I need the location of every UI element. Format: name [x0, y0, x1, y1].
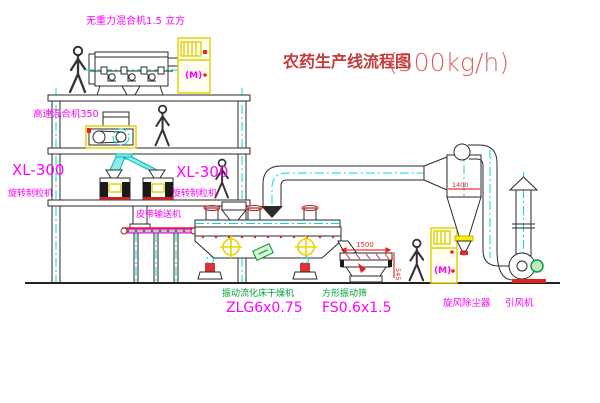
- drawing-canvas: (M): [0, 0, 600, 403]
- fan-motor: [531, 260, 543, 272]
- label-gravity-mixer: 无重力混合机1.5 立方: [86, 14, 185, 27]
- label-belt-conveyor: 皮带输送机: [136, 208, 181, 220]
- rotary-granulator-left: [100, 170, 130, 200]
- label-granulator-right-model: XL-300: [176, 163, 228, 181]
- process-flow-diagram: (M): [0, 0, 600, 403]
- exhaust-duct: [261, 166, 438, 218]
- belt-conveyor: [121, 228, 197, 283]
- exhaust-stack: [510, 172, 537, 262]
- control-cabinet-lower: (M): [431, 228, 457, 283]
- worker-roof: [70, 47, 85, 92]
- cyclone-air-outlet: [454, 144, 470, 160]
- gravity-free-mixer: [86, 52, 180, 95]
- label-sieve-model: FS0.6x1.5: [322, 300, 392, 316]
- dryer-exhaust-ports: [204, 206, 318, 221]
- worker-ground: [410, 240, 424, 281]
- rotary-granulator-right: [143, 170, 173, 200]
- worker-second-floor: [156, 106, 169, 146]
- control-cabinet-upper: (M): [178, 38, 210, 93]
- dryer-feed-hopper: [222, 202, 246, 210]
- dim-sieve-length: 1500: [356, 241, 374, 249]
- label-cyclone: 旋风除尘器: [443, 297, 491, 309]
- dim-cyclone: 1400: [452, 181, 469, 189]
- stack-rain-cap: [510, 177, 537, 190]
- label-granulator-left-model: XL-300: [12, 161, 64, 179]
- motor-symbol: (M): [434, 266, 451, 276]
- y-feed-chute: [109, 154, 161, 172]
- label-granulator-left-name: 旋转制粒机: [8, 187, 53, 199]
- label-high-speed-mixer: 高速混合机350: [33, 108, 99, 120]
- label-sieve-name: 方形振动筛: [322, 287, 367, 299]
- motor-symbol: (M): [185, 71, 202, 81]
- second-floor-slab: [48, 148, 250, 154]
- dim-sieve-height: 545: [394, 268, 402, 280]
- conveyor-legs: [134, 233, 178, 283]
- first-floor-slab: [48, 200, 250, 206]
- label-granulator-right-name: 旋转制粒机: [172, 187, 217, 199]
- roof-slab: [48, 95, 250, 101]
- indicator-light: [203, 50, 207, 54]
- label-fan: 引风机: [505, 297, 534, 309]
- label-dryer-name: 振动流化床干燥机: [222, 287, 294, 299]
- label-dryer-model: ZLG6x0.75: [226, 300, 303, 316]
- vibrating-sieve: [340, 248, 394, 282]
- page-title-capacity: (500kg/h): [388, 48, 509, 77]
- induced-draft-fan: [509, 253, 546, 283]
